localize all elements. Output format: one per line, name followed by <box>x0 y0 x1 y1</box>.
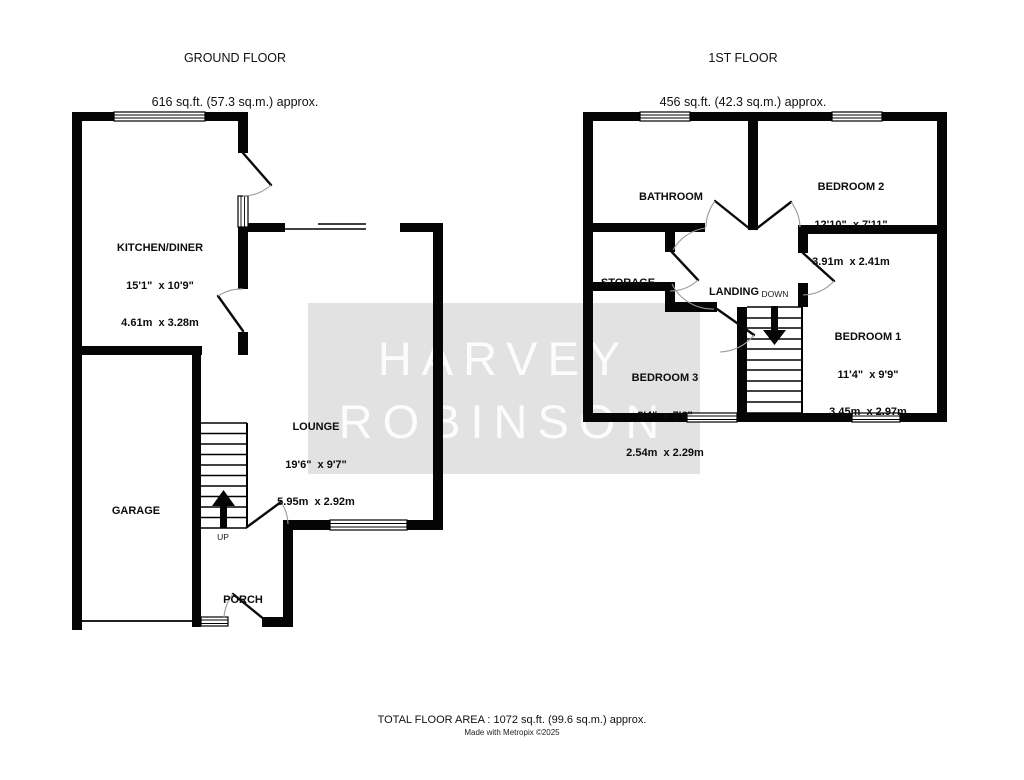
room-label-landing: LANDING <box>709 261 759 324</box>
room-dims-metric: 3.91m x 2.41m <box>812 256 890 269</box>
room-name: BATHROOM <box>639 191 703 204</box>
bathroom-door <box>715 201 750 229</box>
room-label-lounge: LOUNGE 19'6" x 9'7" 5.95m x 2.92m <box>277 396 355 534</box>
room-dims-imperial: 12'10" x 7'11" <box>812 219 890 232</box>
room-name: LANDING <box>709 286 759 299</box>
kitchen-back-door <box>243 153 271 185</box>
room-label-bedroom2: BEDROOM 2 12'10" x 7'11" 3.91m x 2.41m <box>812 156 890 294</box>
bedroom2-door <box>756 202 791 229</box>
room-dims-imperial: 15'1" x 10'9" <box>117 280 203 293</box>
room-name: KITCHEN/DINER <box>117 242 203 255</box>
stairs-up-label: UP <box>217 532 229 542</box>
room-name: BEDROOM 3 <box>626 372 704 385</box>
kitchen-internal-door <box>218 296 243 331</box>
ground-floor-windows <box>114 112 407 626</box>
room-label-bedroom3: BEDROOM 3 8'4" x 7'6" 2.54m x 2.29m <box>626 347 704 485</box>
room-dims-metric: 4.61m x 3.28m <box>117 317 203 330</box>
room-dims-imperial: 11'4" x 9'9" <box>829 369 907 382</box>
room-name: STORAGE <box>601 277 655 290</box>
room-dims-imperial: 8'4" x 7'6" <box>626 410 704 423</box>
room-dims-metric: 5.95m x 2.92m <box>277 496 355 509</box>
total-floor-area: TOTAL FLOOR AREA : 1072 sq.ft. (99.6 sq.… <box>0 714 1024 727</box>
room-label-bathroom: BATHROOM <box>639 166 703 229</box>
ground-floor-plan <box>72 112 443 630</box>
room-name: BEDROOM 1 <box>829 331 907 344</box>
room-label-storage: STORAGE <box>601 252 655 315</box>
room-dims-metric: 2.54m x 2.29m <box>626 447 704 460</box>
first-floor-area: 456 sq.ft. (42.3 sq.m.) approx. <box>660 95 827 110</box>
room-dims-imperial: 19'6" x 9'7" <box>277 459 355 472</box>
footer: TOTAL FLOOR AREA : 1072 sq.ft. (99.6 sq.… <box>0 714 1024 738</box>
room-name: LOUNGE <box>277 421 355 434</box>
room-dims-metric: 3.45m x 2.97m <box>829 406 907 419</box>
stairs-down-label: DOWN <box>762 289 789 299</box>
ground-floor-stairs <box>201 423 247 528</box>
open-plan-divider <box>285 224 366 229</box>
room-name: PORCH <box>223 594 263 607</box>
room-label-porch: PORCH <box>223 569 263 632</box>
room-name: BEDROOM 2 <box>812 181 890 194</box>
floorplan-page: HARVEY ROBINSON <box>0 0 1024 780</box>
metropix-credit: Made with Metropix ©2025 <box>0 727 1024 738</box>
front-door <box>247 502 281 527</box>
first-floor-title: 1ST FLOOR <box>660 51 827 66</box>
ground-floor-title: GROUND FLOOR <box>152 51 319 66</box>
room-label-garage: GARAGE <box>112 480 160 543</box>
ground-floor-area: 616 sq.ft. (57.3 sq.m.) approx. <box>152 95 319 110</box>
ground-floor-walls <box>72 112 443 630</box>
storage-door <box>670 250 698 280</box>
stairs-up-arrow-icon <box>212 490 235 528</box>
room-label-bedroom1: BEDROOM 1 11'4" x 9'9" 3.45m x 2.97m <box>829 306 907 444</box>
first-floor-header: 1ST FLOOR 456 sq.ft. (42.3 sq.m.) approx… <box>660 22 827 138</box>
room-name: GARAGE <box>112 505 160 518</box>
room-label-kitchen-diner: KITCHEN/DINER 15'1" x 10'9" 4.61m x 3.28… <box>117 217 203 355</box>
ground-floor-header: GROUND FLOOR 616 sq.ft. (57.3 sq.m.) app… <box>152 22 319 138</box>
